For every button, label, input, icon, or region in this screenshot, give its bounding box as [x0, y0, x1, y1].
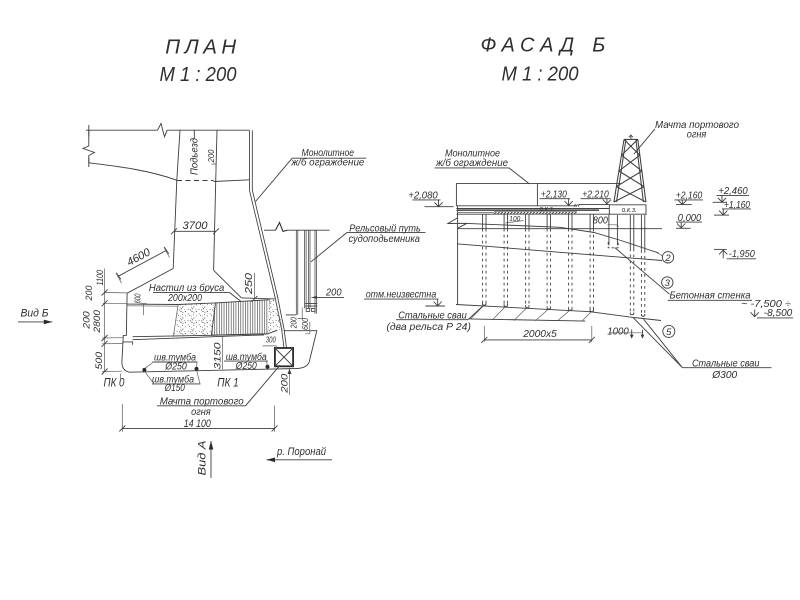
svg-text:огня: огня [191, 406, 211, 418]
svg-text:3150: 3150 [213, 342, 224, 370]
svg-text:Ø150: Ø150 [164, 383, 185, 394]
svg-text:Подьезд: Подьезд [189, 138, 200, 175]
svg-text:Ø250: Ø250 [164, 362, 187, 373]
svg-text:о.к.з.: о.к.з. [622, 205, 637, 214]
svg-text:ПЛАН: ПЛАН [165, 36, 240, 59]
svg-text:-8,500: -8,500 [764, 307, 793, 319]
svg-text:Бетонная стенка: Бетонная стенка [670, 290, 751, 302]
svg-text:Ø300: Ø300 [711, 369, 737, 381]
svg-text:200: 200 [325, 287, 342, 299]
svg-text:М 1 : 200: М 1 : 200 [160, 64, 237, 86]
svg-text:250: 250 [244, 272, 255, 295]
svg-text:ФАСАД Б: ФАСАД Б [480, 35, 611, 57]
svg-text:судоподьемника: судоподьемника [348, 233, 420, 245]
svg-text:300: 300 [266, 334, 276, 344]
svg-text:500: 500 [94, 351, 105, 369]
svg-text:р. Поронай: р. Поронай [276, 446, 326, 458]
svg-text:200: 200 [289, 317, 299, 329]
svg-text:1100: 1100 [95, 269, 106, 285]
svg-text:Вид Б: Вид Б [21, 308, 49, 320]
svg-text:ПК 0: ПК 0 [104, 377, 126, 389]
svg-text:200: 200 [84, 285, 95, 302]
svg-text:200: 200 [81, 310, 92, 329]
svg-text:М 1 : 200: М 1 : 200 [502, 64, 579, 86]
svg-text:2800: 2800 [92, 309, 103, 333]
svg-text:800: 800 [593, 215, 608, 227]
svg-text:200х200: 200х200 [167, 292, 202, 304]
svg-text:1000: 1000 [607, 325, 629, 337]
svg-text:ПК 1: ПК 1 [217, 378, 239, 390]
svg-text:600: 600 [133, 293, 143, 303]
svg-text:200: 200 [206, 149, 216, 163]
svg-text:5: 5 [666, 327, 672, 338]
svg-text:(два рельса Р 24): (два рельса Р 24) [386, 321, 471, 333]
svg-text:отм.неизвестна: отм.неизвестна [366, 288, 437, 300]
svg-text:Вид А: Вид А [196, 441, 208, 476]
svg-text:200: 200 [279, 373, 290, 394]
svg-text:о.к.з.: о.к.з. [540, 204, 555, 213]
svg-text:-1,950: -1,950 [729, 248, 755, 260]
svg-text:2: 2 [664, 253, 671, 264]
svg-text:3: 3 [665, 278, 671, 289]
svg-text:ж/б ограждение: ж/б ограждение [435, 157, 508, 169]
svg-text:огня: огня [687, 129, 707, 141]
svg-text:2000х5: 2000х5 [522, 328, 557, 340]
svg-text:600: 600 [300, 318, 310, 330]
svg-text:Ø250: Ø250 [235, 361, 257, 372]
svg-text:3700: 3700 [183, 220, 209, 232]
